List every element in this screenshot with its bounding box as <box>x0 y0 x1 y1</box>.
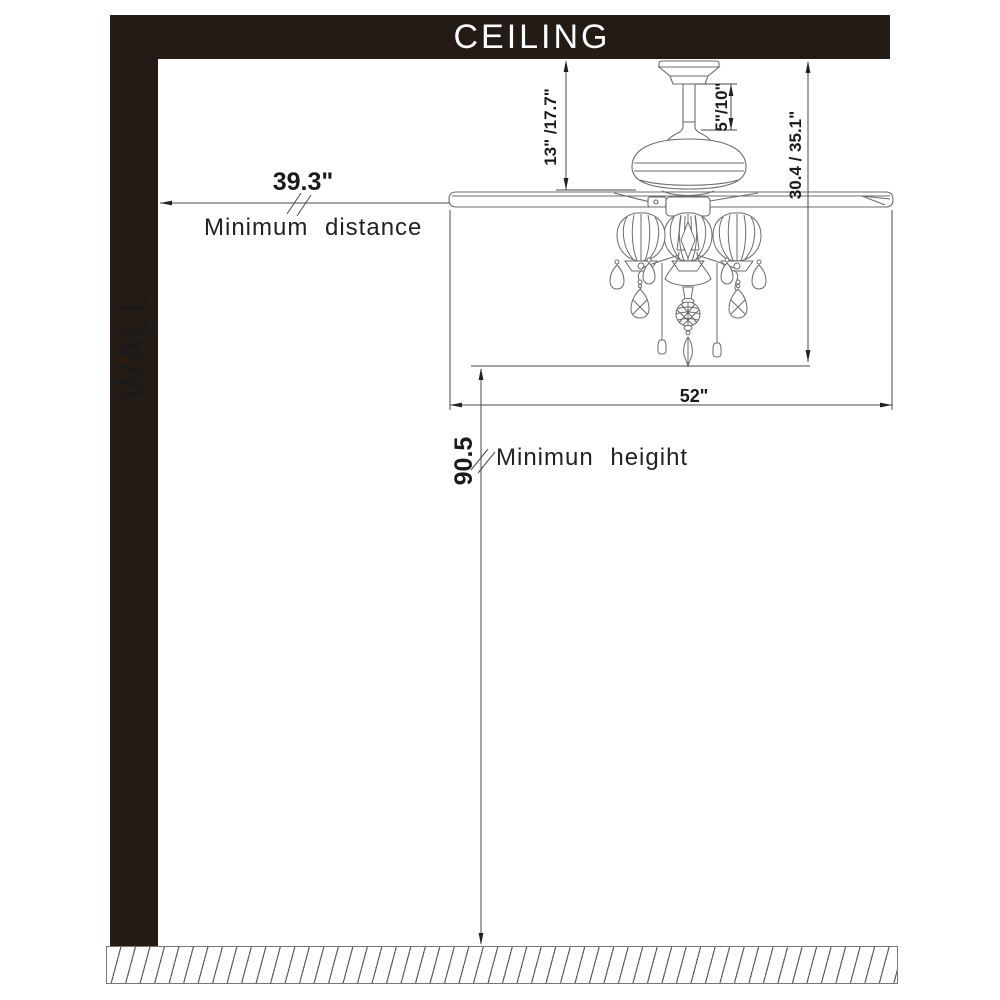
crystal-ball <box>676 299 700 367</box>
dim-wall-distance-value: 39.3" <box>258 168 348 194</box>
mounting-diagram: CEILING WALL <box>0 0 1000 1000</box>
downrod <box>668 84 710 140</box>
dim-floor-height-value: 90.5 <box>451 421 477 501</box>
ceiling-fan-drawing <box>0 0 1000 1000</box>
dim-ceiling-to-light-bottom: 30.4 / 35.1" <box>785 95 807 215</box>
canopy <box>659 61 719 84</box>
fan-blades <box>449 191 893 216</box>
dim-downrod-length: 5"/10" <box>711 62 733 152</box>
dim-wall-distance-label: Minimum distance <box>204 214 422 242</box>
dim-blade-sweep: 52" <box>664 386 724 404</box>
dim-canopy-to-blades: 13" /17.7" <box>540 67 562 187</box>
dim-floor-height-label: Minimun heigiht <box>496 444 688 472</box>
